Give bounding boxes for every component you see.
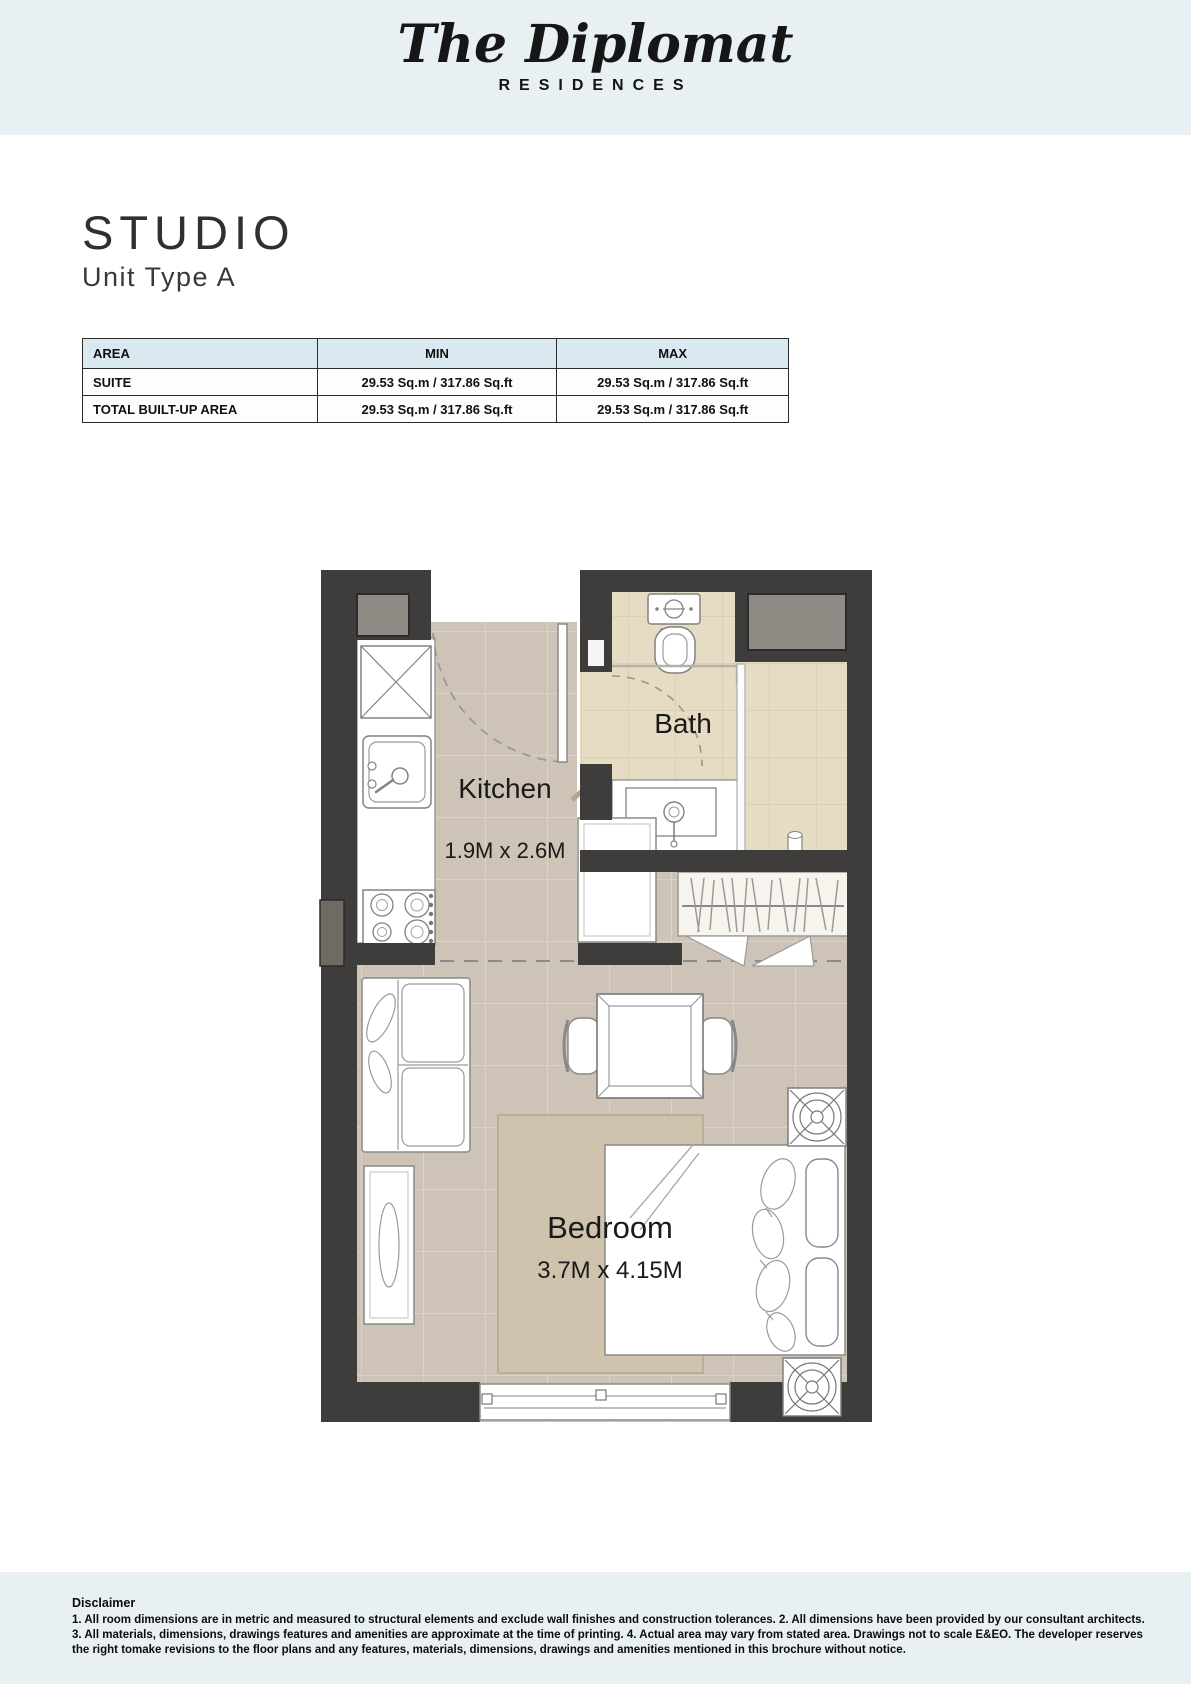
ac-unit-icon (783, 1358, 841, 1416)
fridge-icon (361, 646, 431, 718)
area-table: AREA MIN MAX SUITE 29.53 Sq.m / 317.86 S… (82, 338, 789, 423)
brochure-page: The Diplomat RESIDENCES STUDIO Unit Type… (0, 0, 1191, 1684)
bedroom-label: Bedroom (547, 1210, 673, 1245)
service-shaft-icon (748, 594, 846, 650)
disclaimer-line: the right tomake revisions to the floor … (72, 1643, 1152, 1658)
shower-glass (737, 664, 745, 852)
dining-table-icon (597, 994, 703, 1098)
col-header-min: MIN (317, 339, 557, 369)
entry-closet (578, 818, 656, 942)
dining-chair-icon (700, 1018, 736, 1074)
col-header-max: MAX (557, 339, 789, 369)
suite-label: SUITE (83, 369, 318, 396)
table-row-suite: SUITE 29.53 Sq.m / 317.86 Sq.ft 29.53 Sq… (83, 369, 789, 396)
disclaimer-line: 1. All room dimensions are in metric and… (72, 1613, 1152, 1628)
tv-console-icon (364, 1166, 414, 1324)
kitchen-dimensions: 1.9M x 2.6M (444, 838, 565, 863)
disclaimer-text: 1. All room dimensions are in metric and… (72, 1613, 1152, 1658)
suite-min-value: 29.53 Sq.m / 317.86 Sq.ft (317, 369, 557, 396)
table-row-total: TOTAL BUILT-UP AREA 29.53 Sq.m / 317.86 … (83, 396, 789, 423)
total-label: TOTAL BUILT-UP AREA (83, 396, 318, 423)
page-title: STUDIO (82, 205, 296, 260)
bedroom-dimensions: 3.7M x 4.15M (537, 1257, 682, 1284)
ac-unit-icon (788, 1088, 846, 1146)
floor-plan: Kitchen 1.9M x 2.6M Bath Bedroom 3.7M x … (300, 570, 872, 1432)
col-header-area: AREA (83, 339, 318, 369)
wall-niche (588, 640, 604, 666)
pillow-icon (806, 1159, 838, 1247)
brand-logo-script: The Diplomat (0, 14, 1191, 75)
bath-label: Bath (654, 708, 712, 739)
suite-max-value: 29.53 Sq.m / 317.86 Sq.ft (557, 369, 789, 396)
bath-doorway-floor (580, 670, 614, 766)
kitchen-sink-icon (363, 736, 431, 808)
page-subtitle: Unit Type A (82, 262, 236, 293)
bed-icon (605, 1145, 845, 1355)
stove-icon (363, 890, 435, 945)
shower-drain-icon (788, 832, 802, 853)
dining-chair-icon (564, 1018, 600, 1074)
table-header-row: AREA MIN MAX (83, 339, 789, 369)
window (480, 1384, 730, 1420)
floor-plan-svg: Kitchen 1.9M x 2.6M Bath Bedroom 3.7M x … (300, 570, 872, 1432)
kitchen-area (357, 638, 435, 945)
sofa-icon (361, 978, 470, 1152)
pillow-icon (806, 1258, 838, 1346)
total-max-value: 29.53 Sq.m / 317.86 Sq.ft (557, 396, 789, 423)
wall-panel-icon (320, 900, 344, 966)
kitchen-label: Kitchen (458, 773, 551, 804)
disclaimer-line: 3. All materials, dimensions, drawings f… (72, 1628, 1152, 1643)
brand-logo-subtitle: RESIDENCES (0, 77, 1191, 95)
total-min-value: 29.53 Sq.m / 317.86 Sq.ft (317, 396, 557, 423)
service-shaft-icon (357, 594, 409, 636)
header-band: The Diplomat RESIDENCES (0, 0, 1191, 135)
disclaimer-title: Disclaimer (72, 1596, 135, 1610)
